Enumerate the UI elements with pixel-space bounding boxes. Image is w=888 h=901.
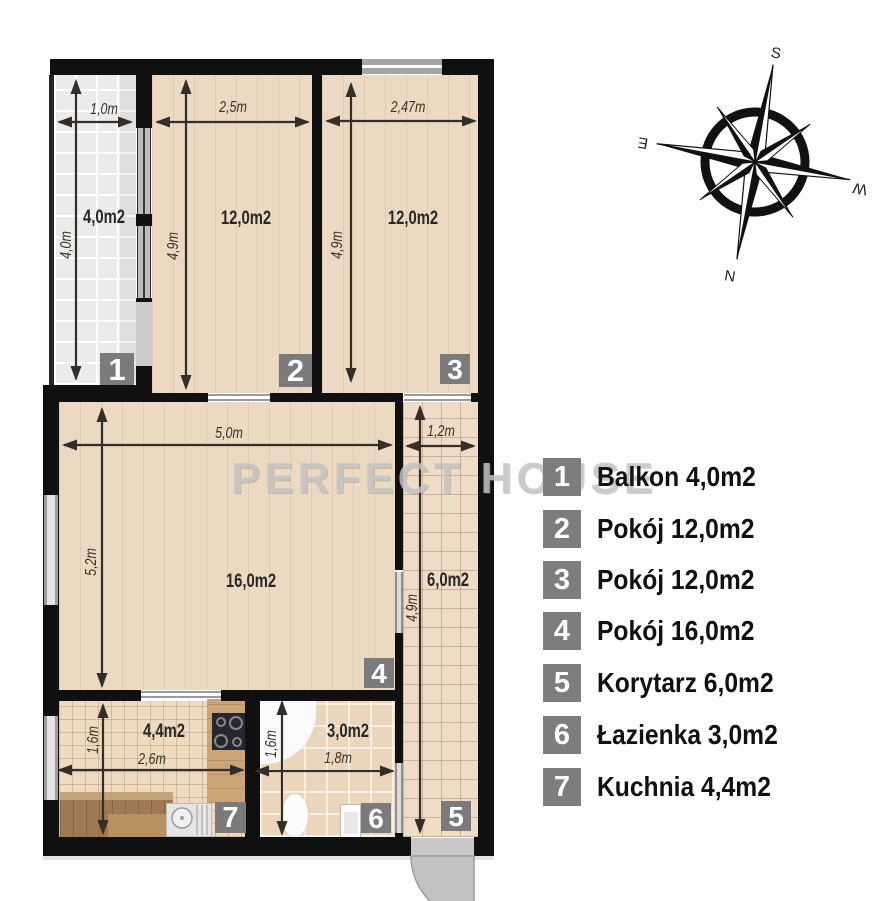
svg-text:E: E	[637, 133, 650, 151]
svg-text:S: S	[770, 44, 783, 62]
svg-text:W: W	[851, 179, 869, 198]
svg-text:N: N	[723, 267, 737, 286]
